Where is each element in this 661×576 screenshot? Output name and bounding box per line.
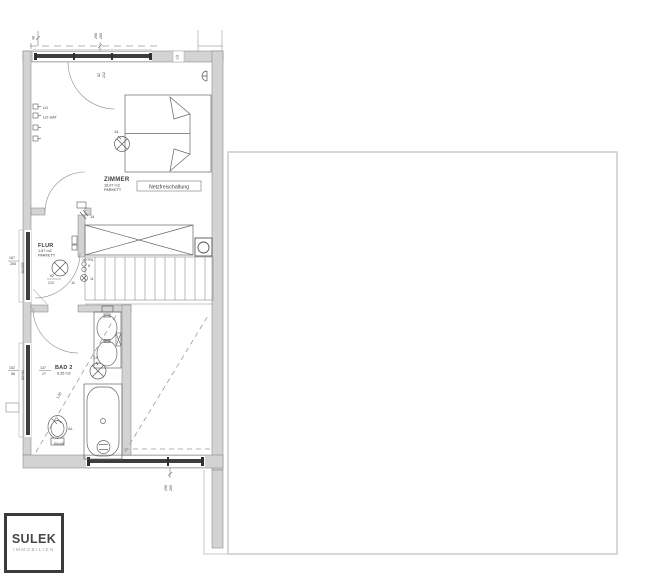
headroom-line-void bbox=[125, 314, 209, 452]
dim-window-top-h: 260 bbox=[99, 33, 103, 39]
windows bbox=[19, 50, 205, 468]
dim-bad-left-w: 152 bbox=[9, 366, 15, 370]
dimension-labels: 82 212 82 212 298 260 298 260 137 27 152… bbox=[8, 33, 180, 491]
bathtub-icon bbox=[84, 384, 122, 459]
label-switch-14: 14 bbox=[90, 214, 95, 219]
label-circuit-11: 11 bbox=[90, 277, 94, 281]
building-walls bbox=[23, 51, 223, 548]
floorplan-drawing: Netzfreischaltung ZIMMER 16,97 m2 PARKET… bbox=[0, 0, 661, 576]
dashed-lines bbox=[30, 46, 210, 452]
socket-ld-icons bbox=[33, 104, 41, 141]
dim-corner: 40 bbox=[32, 36, 36, 40]
label-ld: LD bbox=[43, 105, 48, 110]
door-arc-bad bbox=[33, 308, 78, 353]
chimney-stub bbox=[6, 403, 19, 412]
dim-door-flur-h: 212 bbox=[48, 281, 54, 285]
dim-bad-window-h: 27 bbox=[42, 372, 46, 376]
dim-door-flur-w: 82 bbox=[50, 274, 54, 278]
ceiling-light-flur-icon bbox=[52, 260, 68, 276]
logo-title: SULEK bbox=[12, 533, 56, 546]
label-light-13: 13 bbox=[93, 355, 98, 360]
label-circuit-8: 8 bbox=[88, 264, 90, 268]
window-top bbox=[35, 54, 150, 58]
netzfreischaltung-box: Netzfreischaltung bbox=[137, 181, 201, 191]
dim-headroom: 1,50 bbox=[56, 391, 63, 399]
room-label-zimmer: ZIMMER bbox=[104, 177, 130, 183]
window-flur bbox=[26, 232, 30, 300]
dim-window-bottom-w: 298 bbox=[164, 485, 168, 491]
dim-window-bottom-h: 260 bbox=[169, 485, 173, 491]
dim-flur-left-h: 265 bbox=[10, 262, 16, 266]
dim-door-zimmer-w: 82 bbox=[97, 73, 101, 77]
distributor-icons bbox=[81, 262, 88, 282]
label-wc-outlet: AL bbox=[68, 426, 74, 431]
mirror-icon bbox=[116, 333, 121, 346]
stairs bbox=[85, 257, 213, 304]
wardrobe-icon bbox=[85, 225, 193, 255]
ceiling-light-bad-icon bbox=[90, 362, 106, 379]
toilet-icon bbox=[48, 416, 67, 446]
label-trl: 16/TRL bbox=[82, 258, 94, 262]
window-bottom bbox=[88, 459, 203, 463]
dim-door-zimmer-h: 212 bbox=[102, 72, 106, 78]
bed-icon bbox=[125, 95, 211, 172]
dim-vent: LÜ bbox=[176, 54, 180, 59]
shaft-icon bbox=[195, 238, 212, 256]
dim-bad-window-rot: 62+62 bbox=[21, 370, 25, 380]
room-floor-flur: PARKETT bbox=[38, 254, 56, 258]
dim-wc-size: 60x45 bbox=[54, 442, 64, 446]
label-light-14: 14 bbox=[114, 129, 119, 134]
dim-flur-window-rot: 80/265 bbox=[21, 263, 25, 274]
door-arc-zimmer-flur bbox=[45, 172, 85, 212]
terrace-outline bbox=[204, 152, 617, 554]
logo-subtitle: IMMOBILIEN bbox=[13, 548, 55, 553]
room-floor-zimmer: PARKETT bbox=[104, 188, 122, 192]
dim-bad-left-h: 58 bbox=[11, 372, 15, 376]
logo: SULEK IMMOBILIEN bbox=[4, 513, 64, 573]
netzfreischaltung-label: Netzfreischaltung bbox=[149, 185, 189, 191]
room-area-zimmer: 16,97 m2 bbox=[104, 184, 120, 188]
washbasin-icon bbox=[94, 306, 121, 368]
room-label-bad: BAD 2 bbox=[55, 365, 73, 371]
window-bad bbox=[26, 345, 30, 435]
door-arc-zimmer-top bbox=[68, 62, 115, 109]
electrical-labels: LD LD-SAT 14 14 11 8 11 16/TRL 13 AL bbox=[43, 105, 119, 431]
dim-flur-left-w: 167 bbox=[9, 256, 15, 260]
room-area-bad: 6,35 m2 bbox=[57, 372, 71, 376]
floorplan-canvas: Netzfreischaltung ZIMMER 16,97 m2 PARKET… bbox=[0, 0, 661, 576]
intercom-icon bbox=[72, 236, 77, 250]
room-area-flur: 1,67 m2 bbox=[38, 249, 52, 253]
roof-outline bbox=[198, 30, 223, 52]
label-light-11: 11 bbox=[71, 280, 76, 285]
dim-window-top-w: 298 bbox=[94, 33, 98, 39]
ceiling-light-zimmer-icon bbox=[115, 136, 130, 152]
label-ld-sat: LD-SAT bbox=[43, 115, 57, 120]
socket-right-wall-icon bbox=[202, 71, 207, 81]
dim-bad-window-w: 137 bbox=[40, 366, 46, 370]
